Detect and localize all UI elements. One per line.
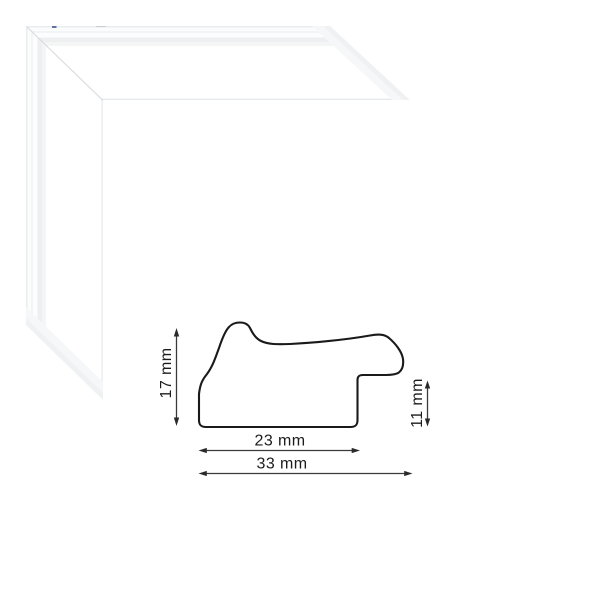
left-bar-groove-band <box>38 20 43 410</box>
dimension-label-height: 17 mm <box>158 348 175 399</box>
left-bar-band <box>33 20 38 410</box>
frame-profile-illustration: 17 mm 11 mm 23 mm 33 mm <box>0 0 600 600</box>
top-bar-outer-edge-line <box>20 26 420 28</box>
top-bar-groove-fade <box>20 42 420 46</box>
arrowhead-left-icon <box>199 448 207 453</box>
product-image-canvas: 17 mm 11 mm 23 mm 33 mm <box>0 0 600 600</box>
left-bar-band <box>28 20 31 410</box>
dimension-face-width: 23 mm <box>199 433 361 454</box>
left-bar-outer-edge-line <box>26 20 28 410</box>
left-bar-step-line <box>31 20 33 410</box>
arrowhead-right-icon <box>352 448 360 453</box>
top-bar-groove-band <box>20 38 420 43</box>
left-bar-groove-fade <box>42 20 46 410</box>
arrowhead-right-icon <box>404 471 412 476</box>
arrowhead-up-icon <box>174 328 179 337</box>
edge-speck-blue <box>52 26 57 28</box>
moulding-cross-section-outline <box>199 323 403 428</box>
dimension-height: 17 mm <box>158 328 179 426</box>
dimension-label-face-width: 23 mm <box>255 433 306 450</box>
top-bar-band <box>20 33 420 38</box>
dimension-rabbet: 11 mm <box>409 378 430 428</box>
dimension-total-width: 33 mm <box>199 456 413 477</box>
moulding-profile-diagram: 17 mm 11 mm 23 mm 33 mm <box>158 323 430 477</box>
top-bar-step-line <box>20 31 420 33</box>
arrowhead-left-icon <box>199 471 207 476</box>
dimension-label-rabbet: 11 mm <box>409 378 426 428</box>
arrowhead-down-icon <box>174 418 179 427</box>
dimension-label-total-width: 33 mm <box>257 456 308 473</box>
edge-speck-gray <box>96 25 106 27</box>
top-bar-band <box>20 28 420 31</box>
